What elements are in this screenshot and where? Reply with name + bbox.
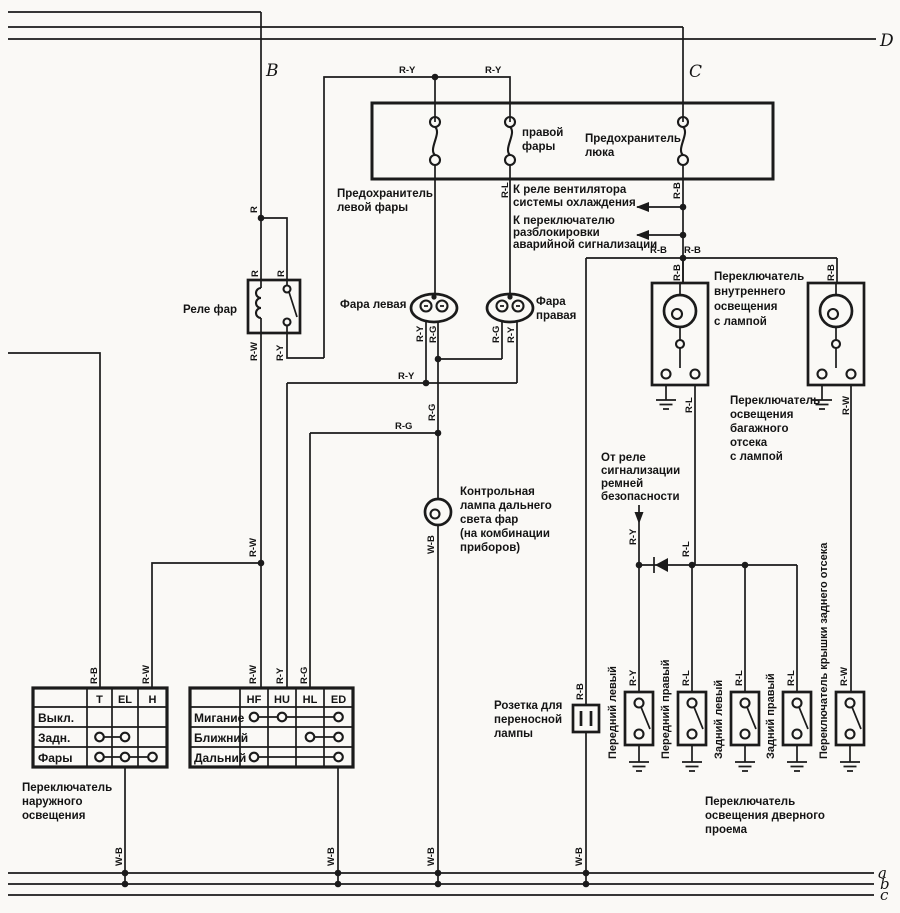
fuse-right-label-2: фары xyxy=(522,141,555,153)
hazard-note: К переключателю разблокировки аварийной … xyxy=(513,215,657,251)
wire-label-rg: R-G xyxy=(427,404,438,421)
door-switch-rear-right xyxy=(783,692,811,745)
wiring-diagram-page: B C D a b c xyxy=(0,0,900,913)
ground-symbol xyxy=(682,762,702,771)
door-switch-front-left xyxy=(625,692,653,745)
wire-label-rl: R-L xyxy=(681,670,692,686)
headlight-relay xyxy=(248,280,300,333)
fuse-hatch-label-2: люка xyxy=(585,147,615,159)
right-headlamp-label-1: Фара xyxy=(536,296,566,308)
fuse-hatch-label-1: Предохранитель xyxy=(585,133,681,145)
wire-label-rb: R-B xyxy=(826,264,837,281)
interior-switch-label-2: внутреннего xyxy=(714,286,786,298)
wire-label-ry: R-Y xyxy=(275,667,286,684)
node-d: D xyxy=(879,31,894,51)
door-switch-rear-left xyxy=(731,692,759,745)
exterior-switch-label-3: освещения xyxy=(22,810,85,822)
node-c: C xyxy=(689,62,702,82)
node-gnd-c: c xyxy=(880,886,889,904)
high-beam-indicator-lamp xyxy=(425,499,451,525)
wire-label-ry: R-Y xyxy=(275,344,286,361)
door-switch-label-1: Передний левый xyxy=(607,666,619,759)
luggage-switch-label-1: Переключатель xyxy=(730,395,820,407)
fuse-left-headlamp xyxy=(430,117,440,165)
indicator-label-2: лампа дальнего xyxy=(460,500,552,512)
wire-label-rw: R-W xyxy=(839,667,850,686)
fan-relay-note: К реле вентилятора системы охлаждения xyxy=(513,184,649,212)
wiring-diagram: B C D a b c xyxy=(0,0,900,913)
wire-label-rl: R-L xyxy=(786,670,797,686)
fuse-right-headlamp xyxy=(505,117,515,165)
interior-switch-label-4: с лампой xyxy=(714,316,767,328)
wire-label-ry: R-Y xyxy=(506,326,517,343)
wire-label-r: R xyxy=(276,270,287,277)
fuse-box: правой фары Предохранитель люка xyxy=(372,103,773,179)
node-b: B xyxy=(265,61,279,81)
door-switches-label-1: Переключатель xyxy=(705,796,795,808)
wire-label-rb: R-B xyxy=(684,245,701,256)
socket-label-2: переносной xyxy=(494,714,562,726)
fuse-left-label-2: левой фары xyxy=(337,202,408,214)
wire-label-ry: R-Y xyxy=(398,371,415,382)
indicator-label-3: света фар xyxy=(460,514,518,526)
indicator-label-1: Контрольная xyxy=(460,486,535,498)
luggage-light-switch xyxy=(808,283,864,385)
wire-label-rl: R-L xyxy=(681,541,692,557)
svg-text:Ближний: Ближний xyxy=(194,731,248,745)
indicator-label-5: приборов) xyxy=(460,542,520,554)
svg-text:безопасности: безопасности xyxy=(601,491,680,503)
exterior-switch-label-2: наружного xyxy=(22,796,83,808)
dimmer-switch-table: HF HU HL ED Мигание Ближний Дальний xyxy=(190,688,353,767)
svg-text:ремней: ремней xyxy=(601,478,643,490)
right-headlamp-label-2: правая xyxy=(536,310,576,322)
luggage-switch-label-5: с лампой xyxy=(730,451,783,463)
trunk-lid-switch xyxy=(836,692,864,745)
wire-label-rl: R-L xyxy=(684,397,695,413)
svg-text:сигнализации: сигнализации xyxy=(601,465,680,477)
relay-coil xyxy=(256,288,261,318)
wire-label-rl: R-L xyxy=(734,670,745,686)
wire-label-wb: W-B xyxy=(426,847,437,866)
svg-text:От реле: От реле xyxy=(601,452,646,464)
wire-fuse-outs xyxy=(435,165,510,296)
wire-label-rw: R-W xyxy=(141,665,152,684)
fuse-right-label-1: правой xyxy=(522,127,563,139)
left-arrow-icon xyxy=(636,202,649,212)
wire-label-rw: R-W xyxy=(249,342,260,361)
svg-text:HL: HL xyxy=(303,694,318,706)
wire-label-ry: R-Y xyxy=(399,65,416,76)
door-switch-label-4: Задний правый xyxy=(765,673,777,759)
svg-text:ED: ED xyxy=(331,694,346,706)
relay-blade xyxy=(289,292,297,317)
svg-text:HU: HU xyxy=(274,694,290,706)
wire-label-r: R xyxy=(250,270,261,277)
door-switches-label-2: освещения дверного xyxy=(705,810,825,822)
wire-label-rw: R-W xyxy=(841,396,852,415)
svg-text:Задн.: Задн. xyxy=(38,731,70,745)
svg-text:К реле вентилятора: К реле вентилятора xyxy=(513,184,627,196)
wire-label-rg: R-G xyxy=(428,326,439,343)
wire-b-feed xyxy=(261,12,287,288)
relay-contact-top xyxy=(284,286,291,293)
svg-text:разблокировки: разблокировки xyxy=(513,227,600,239)
wire-label-rl: R-L xyxy=(500,182,511,198)
ground-symbol xyxy=(735,762,755,771)
svg-text:Выкл.: Выкл. xyxy=(38,711,74,725)
door-switch-label-2: Передний правый xyxy=(660,660,672,759)
left-headlamp-label: Фара левая xyxy=(340,299,406,311)
svg-text:Дальний: Дальний xyxy=(194,751,246,765)
wire-label-rw: R-W xyxy=(248,538,259,557)
wire-label-ry: R-Y xyxy=(485,65,502,76)
wire-label-rg: R-G xyxy=(395,421,412,432)
exterior-switch-label-1: Переключатель xyxy=(22,782,112,794)
exterior-light-switch-table: T EL H Выкл. Задн. Фары xyxy=(33,688,167,767)
wire-label-wb: W-B xyxy=(114,847,125,866)
interior-switch-label-1: Переключатель xyxy=(714,271,804,283)
ground-symbol xyxy=(840,762,860,771)
indicator-label-4: (на комбинации xyxy=(460,528,550,540)
interior-switch-label-3: освещения xyxy=(714,301,777,313)
fuse-left-label-1: Предохранитель xyxy=(337,188,433,200)
seat-belt-note: От реле сигнализации ремней безопасности xyxy=(601,452,680,524)
svg-text:T: T xyxy=(96,694,103,706)
wire-label-rg: R-G xyxy=(491,326,502,343)
svg-text:Мигание: Мигание xyxy=(194,711,245,725)
svg-text:Фары: Фары xyxy=(38,751,73,765)
wire-ry-feed xyxy=(287,77,510,358)
door-switch-front-right xyxy=(678,692,706,745)
ground-symbol xyxy=(656,400,676,409)
wire-relay-out xyxy=(152,318,261,688)
ground-symbol xyxy=(629,762,649,771)
relay-outline xyxy=(248,280,300,333)
down-arrow-icon xyxy=(635,512,644,524)
wire-label-wb: W-B xyxy=(326,847,337,866)
svg-text:К переключателю: К переключателю xyxy=(513,215,615,227)
luggage-switch-label-2: освещения xyxy=(730,409,793,421)
svg-text:EL: EL xyxy=(118,694,132,706)
wire-label-wb: W-B xyxy=(426,535,437,554)
portable-lamp-socket xyxy=(573,705,599,732)
wire-label-ry: R-Y xyxy=(415,325,426,342)
socket-label-3: лампы xyxy=(494,728,533,740)
luggage-switch-label-3: багажного xyxy=(730,423,788,435)
bus-top xyxy=(8,12,876,39)
svg-text:аварийной сигнализации: аварийной сигнализации xyxy=(513,239,657,251)
wire-label-ry: R-Y xyxy=(628,669,639,686)
wire-label-rb: R-B xyxy=(672,182,683,199)
ground-symbol xyxy=(787,762,807,771)
diode xyxy=(654,557,668,573)
svg-text:системы охлаждения: системы охлаждения xyxy=(513,197,636,209)
wire-label-rg: R-G xyxy=(299,667,310,684)
wire-label-r: R xyxy=(249,206,260,213)
relay-label: Реле фар xyxy=(183,304,237,316)
wire-label-ry: R-Y xyxy=(628,528,639,545)
door-switch-label-5: Переключатель крышки заднего отсека xyxy=(818,542,830,759)
wire-label-rb: R-B xyxy=(650,245,667,256)
socket-label-1: Розетка для xyxy=(494,700,562,712)
door-switches-label-3: проема xyxy=(705,824,748,836)
wire-left-feed xyxy=(8,353,100,688)
wire-label-rb: R-B xyxy=(672,264,683,281)
fuse-box-outline xyxy=(372,103,773,179)
luggage-switch-label-4: отсека xyxy=(730,437,768,449)
wire-label-rb: R-B xyxy=(89,667,100,684)
svg-text:H: H xyxy=(149,694,157,706)
door-switch-label-3: Задний левый xyxy=(713,680,725,759)
wire-label-rw: R-W xyxy=(248,665,259,684)
relay-contact-bottom xyxy=(284,319,291,326)
wire-label-rb: R-B xyxy=(575,683,586,700)
interior-light-switch xyxy=(652,283,708,385)
wire-label-wb: W-B xyxy=(574,847,585,866)
svg-text:HF: HF xyxy=(247,694,262,706)
